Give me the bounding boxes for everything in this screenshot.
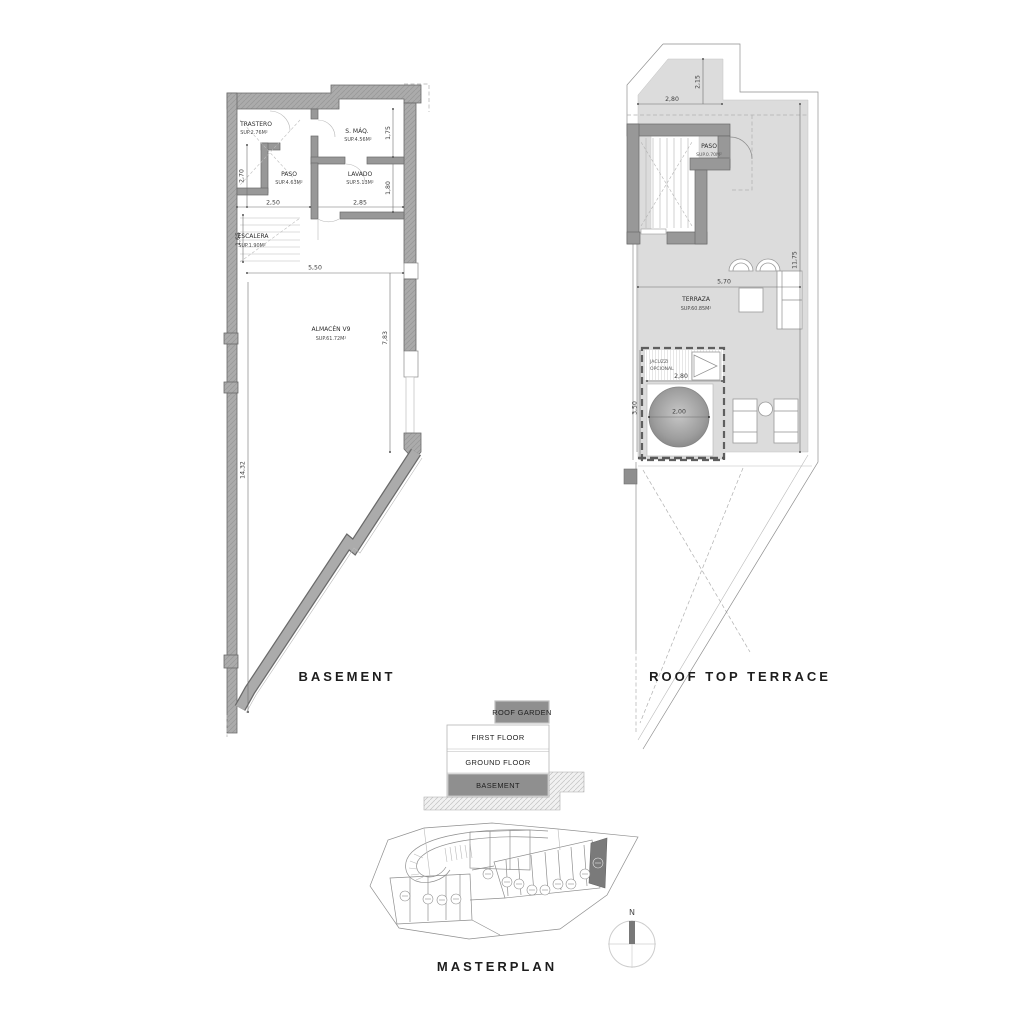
basement-opening <box>406 377 414 433</box>
basement-pilaster <box>224 655 238 668</box>
jacuzzi-label-1: JACUZZI <box>649 359 668 365</box>
masterplan-title: MASTERPLAN <box>437 959 557 974</box>
basement-pilaster <box>224 382 238 393</box>
masterplan-road <box>406 830 548 883</box>
roof-room-paso: PASO <box>701 143 717 150</box>
room-paso: PASO <box>281 171 297 178</box>
basement-left-wall <box>227 93 237 733</box>
stack-level-ground-floor: GROUND FLOOR <box>465 758 530 767</box>
compass: N <box>608 908 656 968</box>
dim-783: 7,83 <box>382 331 389 345</box>
stack-level-basement: BASEMENT <box>476 781 520 790</box>
room-escalera-area: SUP.1.90M² <box>238 243 266 249</box>
dim-270: 2,70 <box>239 169 246 183</box>
dim-175: 1,75 <box>385 126 392 140</box>
basement-pilaster <box>224 333 238 344</box>
room-escalera: ESCALERA <box>237 233 269 240</box>
dim-1432: 14,32 <box>240 461 247 479</box>
room-paso-area: SUP.4.63M² <box>275 180 303 186</box>
dim-250: 2,50 <box>266 200 280 207</box>
room-trastero: TRASTERO <box>239 121 272 128</box>
basement-room-labels: TRASTERO SUP.2.76M² S. MÁQ. SUP.4.56M² P… <box>237 121 373 342</box>
roof-title: ROOF TOP TERRACE <box>649 669 831 684</box>
compass-north-label: N <box>629 908 635 917</box>
basement-plan: 2,70 1,65 2,50 2,85 1,75 1,80 5,50 7,83 … <box>224 84 429 737</box>
stack-level-roof-garden: ROOF GARDEN <box>492 708 551 717</box>
roof-room-terraza-area: SUP.60.85M² <box>681 306 712 312</box>
dim-570: 5,70 <box>717 279 731 286</box>
room-lavado: LAVADO <box>348 171 373 178</box>
basement-right-wall <box>404 103 416 263</box>
stack-level-first-floor: FIRST FLOOR <box>471 733 524 742</box>
room-trastero-area: SUP.2.76M² <box>240 130 268 136</box>
basement-title: BASEMENT <box>299 669 396 684</box>
roof-terrace-plan: PASO SUP.0.70M² TERRAZA SUP.60.85M² <box>624 44 831 749</box>
compass-needle <box>629 921 635 944</box>
roof-room-terraza: TERRAZA <box>681 296 711 303</box>
basement-window <box>404 263 418 279</box>
dim-215: 2,15 <box>695 75 702 89</box>
dim-180: 1,80 <box>385 181 392 195</box>
roof-room-paso-area: SUP.0.70M² <box>696 152 722 158</box>
room-smaq: S. MÁQ. <box>345 128 369 135</box>
basement-window <box>404 351 418 377</box>
jacuzzi-label-2: OPCIONAL <box>650 366 674 372</box>
basement-top-wall <box>227 85 421 109</box>
dim-1175: 11,75 <box>792 251 799 269</box>
architectural-sheet: 2,70 1,65 2,50 2,85 1,75 1,80 5,50 7,83 … <box>0 0 1024 1024</box>
dim-200: 2,00 <box>672 409 686 416</box>
room-lavado-area: SUP.5.13M² <box>346 180 374 186</box>
basement-dimensions: 2,70 1,65 2,50 2,85 1,75 1,80 5,50 7,83 … <box>235 108 404 713</box>
dim-350: 3,50 <box>632 401 639 415</box>
jacuzzi-zone: JACUZZI OPCIONAL <box>642 348 724 460</box>
floor-plan-canvas: 2,70 1,65 2,50 2,85 1,75 1,80 5,50 7,83 … <box>0 0 1024 1024</box>
dim-285: 2,85 <box>353 200 367 207</box>
dim-280j: 2,80 <box>674 373 688 380</box>
masterplan: N MASTERPLAN <box>370 823 656 974</box>
room-smaq-area: SUP.4.56M² <box>344 137 372 143</box>
basement-right-wall <box>404 279 416 351</box>
dim-280top: 2,80 <box>665 96 679 103</box>
room-almacen-area: SUP.61.72M² <box>316 336 347 342</box>
level-stack-diagram: ROOF GARDEN FIRST FLOOR GROUND FLOOR BAS… <box>424 701 584 810</box>
dim-550: 5,50 <box>308 265 322 272</box>
room-almacen: ALMACÉN V9 <box>312 325 351 333</box>
